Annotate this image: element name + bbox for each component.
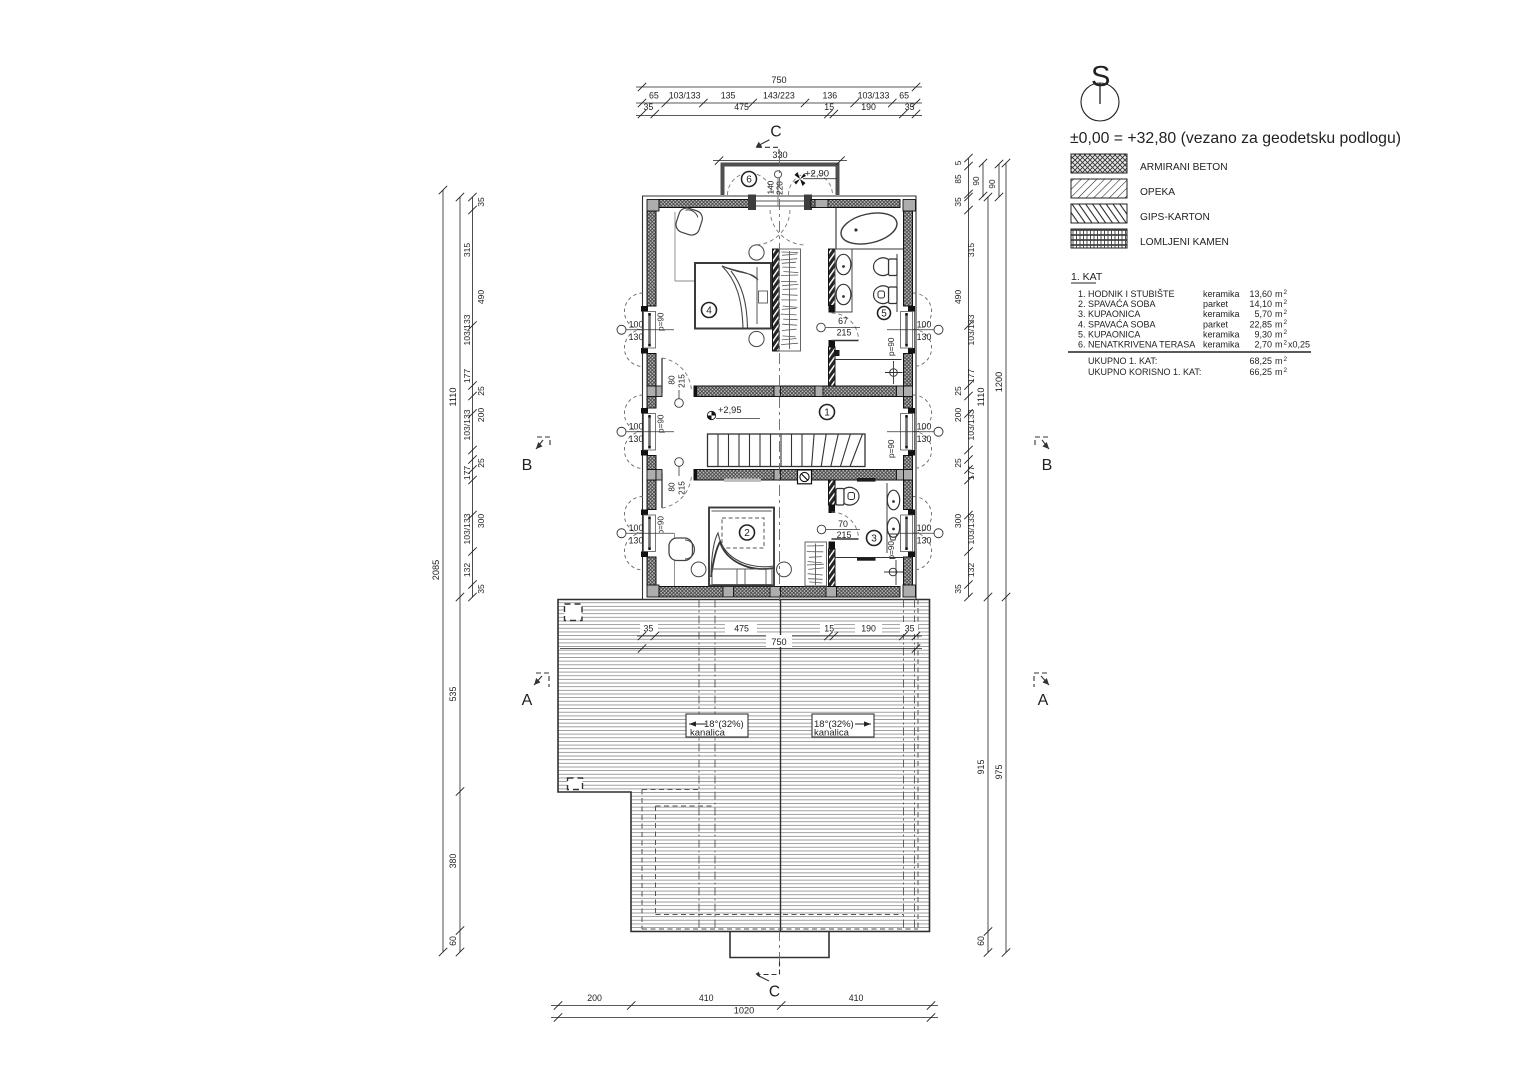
- svg-text:UKUPNO KORISNO 1. KAT:: UKUPNO KORISNO 1. KAT:: [1088, 367, 1201, 377]
- svg-text:190: 190: [861, 624, 876, 634]
- svg-text:200: 200: [476, 408, 486, 423]
- svg-text:2085: 2085: [431, 560, 441, 580]
- svg-text:1: 1: [824, 408, 830, 419]
- svg-text:1110: 1110: [976, 387, 986, 406]
- svg-text:2: 2: [1284, 299, 1288, 306]
- svg-text:490: 490: [953, 290, 963, 305]
- svg-text:67: 67: [838, 316, 848, 326]
- svg-text:103/133: 103/133: [669, 91, 701, 101]
- svg-text:3: 3: [871, 534, 877, 545]
- svg-text:S: S: [1091, 61, 1110, 93]
- svg-text:2: 2: [1284, 289, 1288, 296]
- svg-text:m: m: [1275, 309, 1283, 319]
- svg-text:100: 100: [629, 421, 644, 431]
- svg-text:177: 177: [966, 466, 976, 481]
- svg-text:220: 220: [776, 181, 785, 195]
- svg-text:80: 80: [668, 375, 677, 385]
- svg-text:m: m: [1275, 329, 1283, 339]
- svg-text:m: m: [1275, 367, 1283, 377]
- svg-text:m: m: [1275, 340, 1283, 350]
- svg-text:A: A: [522, 692, 533, 709]
- svg-text:750: 750: [771, 637, 786, 647]
- svg-text:100: 100: [629, 319, 644, 329]
- svg-text:ARMIRANI BETON: ARMIRANI BETON: [1140, 162, 1228, 173]
- svg-text:380: 380: [448, 854, 458, 869]
- svg-text:135: 135: [721, 91, 736, 101]
- svg-text:keramika: keramika: [1203, 329, 1240, 339]
- svg-text:35: 35: [644, 624, 654, 634]
- svg-text:6.: 6.: [1078, 340, 1086, 350]
- svg-text:2,70: 2,70: [1254, 340, 1272, 350]
- svg-text:2: 2: [1284, 356, 1288, 363]
- svg-text:2: 2: [744, 528, 750, 539]
- svg-text:130: 130: [629, 535, 644, 545]
- svg-text:60: 60: [976, 936, 986, 946]
- svg-text:103/133: 103/133: [462, 513, 472, 544]
- svg-text:130: 130: [629, 332, 644, 342]
- svg-text:C: C: [770, 124, 781, 141]
- svg-text:22,85: 22,85: [1249, 319, 1272, 329]
- svg-text:keramika: keramika: [1203, 289, 1240, 299]
- svg-text:410: 410: [699, 993, 714, 1003]
- svg-text:1110: 1110: [448, 387, 458, 406]
- svg-text:GIPS-KARTON: GIPS-KARTON: [1140, 212, 1210, 223]
- svg-text:parket: parket: [1203, 319, 1229, 329]
- svg-text:4: 4: [706, 306, 712, 317]
- svg-text:300: 300: [953, 514, 963, 529]
- svg-text:6: 6: [746, 175, 752, 186]
- svg-text:HODNIK I STUBIŠTE: HODNIK I STUBIŠTE: [1088, 289, 1175, 299]
- svg-text:KUPAONICA: KUPAONICA: [1088, 309, 1140, 319]
- svg-text:p=90: p=90: [657, 414, 666, 433]
- svg-text:5,70: 5,70: [1254, 309, 1272, 319]
- svg-text:177: 177: [966, 369, 976, 384]
- svg-text:1020: 1020: [734, 1006, 754, 1016]
- svg-text:103/133: 103/133: [966, 409, 976, 440]
- svg-text:kanalica: kanalica: [690, 728, 726, 739]
- svg-text:130: 130: [917, 332, 932, 342]
- svg-text:3.: 3.: [1078, 309, 1086, 319]
- svg-text:177: 177: [462, 466, 472, 481]
- svg-text:m: m: [1275, 289, 1283, 299]
- svg-text:4.: 4.: [1078, 319, 1086, 329]
- svg-text:1.: 1.: [1078, 289, 1086, 299]
- svg-text:keramika: keramika: [1203, 309, 1240, 319]
- svg-text:25: 25: [953, 458, 963, 468]
- svg-text:25: 25: [476, 386, 486, 396]
- svg-text:200: 200: [953, 408, 963, 423]
- svg-text:1. KAT: 1. KAT: [1071, 271, 1103, 283]
- svg-text:300: 300: [476, 514, 486, 529]
- svg-text:103/133: 103/133: [858, 91, 890, 101]
- svg-text:103/133: 103/133: [462, 409, 472, 440]
- svg-text:35: 35: [953, 584, 963, 594]
- svg-text:90: 90: [972, 176, 981, 186]
- svg-text:9,30: 9,30: [1254, 329, 1272, 339]
- svg-text:215: 215: [837, 530, 852, 540]
- svg-text:B: B: [1042, 457, 1053, 474]
- svg-text:15: 15: [824, 102, 834, 112]
- svg-text:132: 132: [462, 563, 472, 578]
- svg-text:190: 190: [861, 102, 876, 112]
- svg-text:parket: parket: [1203, 299, 1229, 309]
- svg-text:35: 35: [905, 102, 915, 112]
- svg-text:1200: 1200: [994, 372, 1004, 392]
- svg-text:2: 2: [1284, 339, 1288, 346]
- svg-text:100: 100: [917, 421, 932, 431]
- svg-text:25: 25: [953, 386, 963, 396]
- svg-text:5: 5: [954, 160, 963, 165]
- svg-text:p=90: p=90: [887, 541, 896, 560]
- svg-text:5.: 5.: [1078, 329, 1086, 339]
- svg-text:130: 130: [917, 434, 932, 444]
- svg-text:5: 5: [881, 309, 887, 320]
- svg-text:2: 2: [1284, 319, 1288, 326]
- svg-text:35: 35: [644, 102, 654, 112]
- svg-text:65: 65: [649, 91, 659, 101]
- svg-text:315: 315: [462, 243, 472, 258]
- svg-text:35: 35: [476, 197, 486, 207]
- svg-text:490: 490: [476, 290, 486, 305]
- svg-text:35: 35: [953, 197, 963, 207]
- svg-text:15: 15: [824, 624, 834, 634]
- svg-text:+2,95: +2,95: [718, 405, 742, 415]
- svg-text:103/133: 103/133: [966, 314, 976, 345]
- svg-text:A: A: [1038, 692, 1049, 709]
- svg-text:p=90: p=90: [887, 439, 896, 458]
- svg-text:330: 330: [772, 150, 787, 160]
- svg-text:2: 2: [1284, 309, 1288, 316]
- svg-text:975: 975: [994, 765, 1004, 780]
- svg-text:68,25: 68,25: [1249, 356, 1272, 366]
- svg-text:m: m: [1275, 299, 1283, 309]
- svg-text:2.: 2.: [1078, 299, 1086, 309]
- svg-text:OPEKA: OPEKA: [1140, 187, 1175, 198]
- svg-text:NENATKRIVENA TERASA: NENATKRIVENA TERASA: [1088, 340, 1195, 350]
- svg-text:60: 60: [448, 936, 458, 946]
- svg-text:70: 70: [838, 519, 848, 529]
- svg-text:UKUPNO 1. KAT:: UKUPNO 1. KAT:: [1088, 356, 1157, 366]
- svg-text:315: 315: [966, 243, 976, 258]
- svg-text:keramika: keramika: [1203, 340, 1240, 350]
- svg-text:85: 85: [954, 174, 963, 184]
- svg-text:130: 130: [917, 535, 932, 545]
- svg-text:90: 90: [988, 179, 997, 189]
- svg-text:m: m: [1275, 319, 1283, 329]
- svg-text:B: B: [522, 457, 533, 474]
- svg-text:215: 215: [837, 328, 852, 338]
- svg-text:177: 177: [462, 369, 472, 384]
- svg-text:136: 136: [823, 91, 838, 101]
- svg-text:C: C: [769, 984, 780, 1001]
- svg-text:65: 65: [899, 91, 909, 101]
- svg-text:200: 200: [587, 993, 602, 1003]
- svg-text:SPAVAĆA SOBA: SPAVAĆA SOBA: [1088, 299, 1156, 309]
- svg-text:100: 100: [629, 523, 644, 533]
- svg-text:LOMLJENI KAMEN: LOMLJENI KAMEN: [1140, 237, 1229, 248]
- svg-text:475: 475: [734, 102, 749, 112]
- svg-text:m: m: [1275, 356, 1283, 366]
- svg-text:25: 25: [476, 458, 486, 468]
- svg-text:p=90: p=90: [657, 516, 666, 535]
- svg-text:103/133: 103/133: [966, 513, 976, 544]
- svg-text:p=90: p=90: [657, 312, 666, 331]
- svg-text:130: 130: [629, 434, 644, 444]
- svg-text:2: 2: [1284, 367, 1288, 374]
- svg-text:KUPAONICA: KUPAONICA: [1088, 329, 1140, 339]
- svg-text:+2,90: +2,90: [805, 169, 829, 180]
- svg-text:14,10: 14,10: [1249, 299, 1272, 309]
- svg-text:475: 475: [734, 624, 749, 634]
- svg-text:535: 535: [448, 687, 458, 702]
- svg-text:215: 215: [678, 481, 687, 495]
- svg-text:p=90: p=90: [887, 337, 896, 356]
- svg-text:80: 80: [668, 482, 677, 492]
- svg-text:750: 750: [771, 75, 786, 85]
- svg-text:±0,00 = +32,80 (vezano za geod: ±0,00 = +32,80 (vezano za geodetsku podl…: [1070, 130, 1401, 147]
- svg-text:915: 915: [976, 760, 986, 775]
- svg-text:66,25: 66,25: [1249, 367, 1272, 377]
- svg-text:410: 410: [849, 993, 864, 1003]
- svg-text:x0,25: x0,25: [1288, 340, 1310, 350]
- svg-text:2: 2: [1284, 329, 1288, 336]
- svg-text:100: 100: [917, 319, 932, 329]
- svg-text:140: 140: [767, 180, 776, 194]
- svg-text:13,60: 13,60: [1249, 289, 1272, 299]
- svg-text:215: 215: [678, 374, 687, 388]
- svg-text:35: 35: [905, 624, 915, 634]
- svg-text:143/223: 143/223: [763, 91, 795, 101]
- svg-text:132: 132: [966, 563, 976, 578]
- svg-text:SPAVAĆA SOBA: SPAVAĆA SOBA: [1088, 319, 1156, 329]
- svg-text:35: 35: [476, 584, 486, 594]
- svg-text:kanalica: kanalica: [814, 728, 850, 739]
- svg-text:103/133: 103/133: [462, 314, 472, 345]
- svg-text:100: 100: [917, 523, 932, 533]
